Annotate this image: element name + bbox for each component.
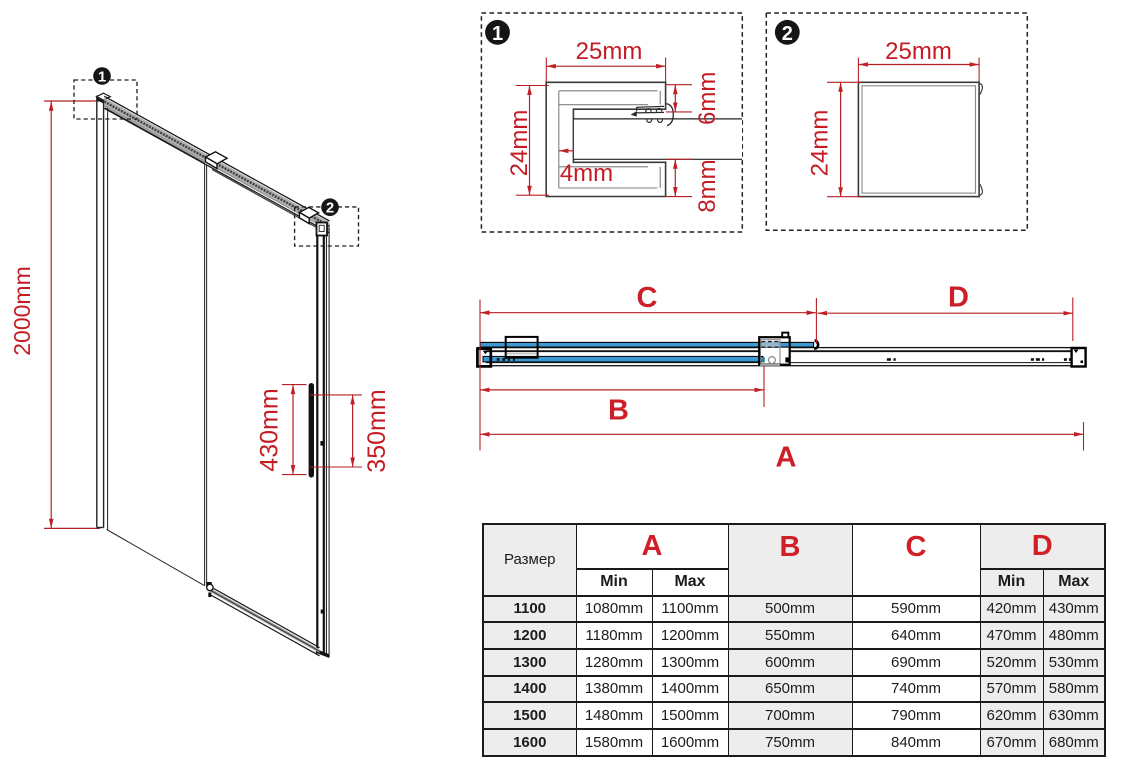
svg-text:2: 2	[782, 23, 793, 45]
svg-text:350mm: 350mm	[363, 389, 391, 472]
svg-text:B: B	[608, 395, 629, 427]
svg-text:4mm: 4mm	[560, 160, 613, 187]
svg-text:430mm: 430mm	[256, 388, 284, 471]
svg-text:8mm: 8mm	[694, 159, 721, 212]
svg-text:24mm: 24mm	[807, 110, 834, 177]
svg-text:C: C	[637, 282, 658, 314]
svg-text:24mm: 24mm	[506, 110, 533, 177]
svg-text:2000mm: 2000mm	[9, 266, 35, 355]
svg-text:1: 1	[98, 69, 106, 86]
svg-text:2: 2	[326, 200, 334, 217]
svg-text:25mm: 25mm	[576, 38, 643, 65]
svg-text:25mm: 25mm	[885, 38, 952, 65]
svg-text:D: D	[948, 282, 969, 314]
svg-text:A: A	[776, 442, 797, 474]
svg-text:6mm: 6mm	[694, 72, 721, 125]
svg-text:1: 1	[492, 23, 503, 45]
